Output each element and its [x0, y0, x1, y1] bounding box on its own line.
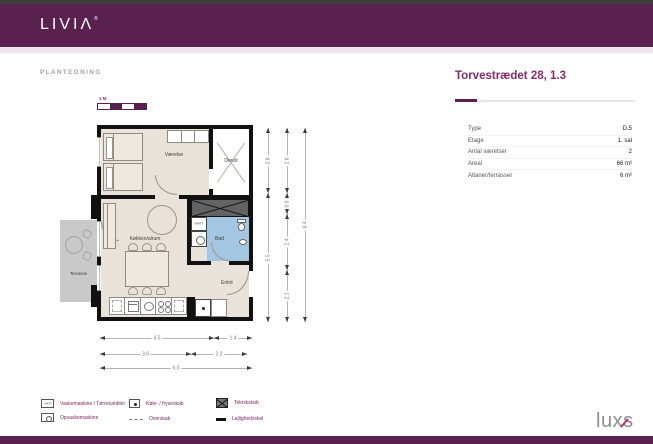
dimension-segment: 4.5 — [100, 338, 214, 339]
dimension-segment: 2.8 — [287, 128, 288, 193]
dimension-segment: 1.4 — [214, 338, 252, 339]
dimension-segment: 2.4 — [287, 214, 288, 270]
bed — [103, 133, 143, 161]
scale-bar — [97, 103, 147, 110]
living-window — [97, 265, 101, 291]
room-storage: Depot — [213, 129, 249, 195]
luxs-logo: luxs — [596, 410, 634, 433]
info-row-vaerelser: Antal værelser2 — [468, 147, 632, 159]
kitchen-sink-icon — [141, 298, 156, 314]
legend-item-washer: VM/TT Vaskemaskine / Tørretumbler — [41, 399, 125, 408]
legend-item-fridge: Køle- / fryseskab — [129, 399, 184, 408]
room-label-storage: Depot — [213, 159, 249, 164]
cabinet-cell — [110, 298, 125, 314]
round-lounge-chair — [147, 205, 177, 235]
stove-icon — [156, 298, 171, 314]
kitchen-counter — [109, 297, 187, 315]
dining-table — [125, 251, 169, 287]
room-label-bedroom: Værelse — [149, 153, 199, 158]
terrace-table — [65, 236, 83, 254]
dining-chair — [156, 287, 166, 295]
legend-item-dishwasher: Opvaskemaskine — [41, 413, 98, 422]
sink-icon — [239, 239, 247, 245]
facade-pillar — [91, 195, 97, 219]
title-divider — [455, 100, 635, 102]
fridge-freezer-dot-icon — [129, 399, 140, 408]
bedroom-wall — [101, 195, 155, 199]
entrance-door-opening — [249, 271, 253, 297]
hall-cabinet — [211, 299, 227, 317]
room-label-washer: VM/TT — [195, 223, 204, 226]
dining-chair — [156, 243, 166, 251]
luxs-logo-text: luxs — [596, 410, 634, 432]
washing-machine-icon — [191, 231, 207, 247]
washer-dryer-box-icon: VM/TT — [41, 399, 54, 408]
terrace-chair — [82, 229, 93, 240]
dimension-segment: 2.2 — [191, 354, 247, 355]
terrace-chair — [82, 251, 93, 262]
dining-chair — [128, 243, 138, 251]
room-label-kitchen: Køkken/alrum — [113, 237, 177, 242]
room-label-terrace: Terrasse — [60, 272, 97, 277]
party-wall-line-icon — [216, 418, 226, 421]
dimension-segment: 5.5 — [268, 193, 269, 322]
dining-chair — [128, 287, 138, 295]
header-bar: LIVIΛ® — [0, 4, 653, 47]
trademark-icon: ® — [94, 16, 98, 22]
legend-item-party-wall: Lejlighedsskel — [216, 416, 263, 422]
dishwasher-box-icon — [41, 413, 54, 422]
fridge-freezer-icon — [195, 299, 211, 317]
info-row-type: TypeD.5 — [468, 124, 632, 136]
bedroom-window — [97, 137, 101, 167]
bath-door-opening — [211, 261, 229, 265]
info-table: TypeD.5 Etage1. sal Antal værelser2 Area… — [468, 124, 632, 182]
washer-dryer-closet: VM/TT — [191, 217, 207, 231]
header-accent-strip — [0, 47, 653, 53]
dimension-segment: 8.4 — [305, 128, 306, 322]
dimension-segment: 3.6 — [100, 354, 191, 355]
dimension-segment: 2.1 — [287, 270, 288, 322]
legend-item-overskab: Overskab — [129, 416, 170, 422]
upper-cabinet-dashed-icon — [129, 419, 143, 420]
toilet-bowl-icon — [238, 223, 245, 231]
technical-cabinet-hatch-icon — [216, 398, 228, 408]
footer-strip — [0, 436, 653, 444]
dining-chair — [142, 287, 152, 295]
dimension-segment: 0.9 — [287, 193, 288, 214]
plantegning-page: LIVIΛ® PLANTEGNING Torvestrædet 28, 1.3 … — [0, 0, 653, 444]
sofa — [103, 203, 116, 249]
livia-logo: LIVIΛ® — [40, 16, 98, 34]
scale-bar-label: 1 M — [99, 96, 107, 101]
technical-shaft — [191, 199, 249, 217]
terrace-door-opening — [97, 221, 101, 257]
wardrobe — [167, 130, 209, 143]
info-row-areal: Areal66 m² — [468, 159, 632, 171]
hall-wall-stub — [187, 297, 195, 317]
page-title: Torvestrædet 28, 1.3 — [455, 70, 566, 82]
dining-chair — [142, 243, 152, 251]
floor-plan-drawing: Terrasse Værelse Depot VM/TT Bad — [97, 125, 253, 321]
bed — [103, 163, 143, 191]
divider-accent — [455, 99, 477, 102]
legend-item-teknikskab: Teknikskab — [216, 398, 259, 408]
oven-icon — [125, 298, 140, 314]
info-row-terrasse: Altaner/terrasser6 m² — [468, 170, 632, 182]
info-row-etage: Etage1. sal — [468, 136, 632, 148]
livia-logo-text: LIVIΛ — [40, 16, 94, 33]
dimension-segment: 6.0 — [100, 368, 252, 369]
section-label: PLANTEGNING — [40, 69, 102, 76]
dimension-segment: 2.8 — [268, 128, 269, 193]
cabinet-cell — [172, 298, 186, 314]
